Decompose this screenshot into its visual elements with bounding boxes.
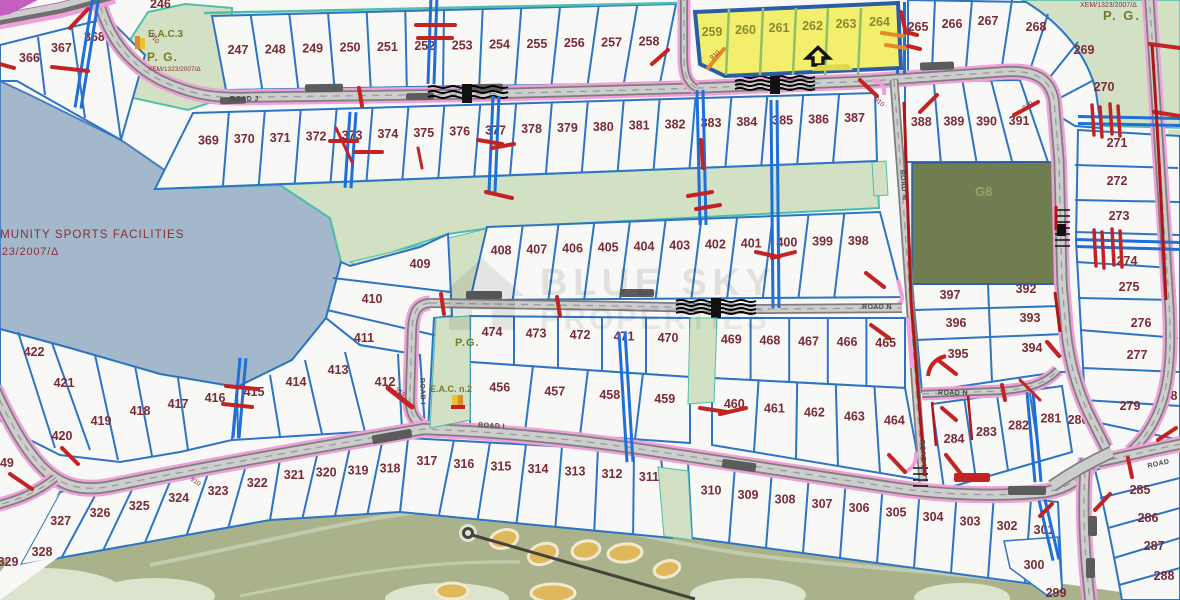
svg-text:270: 270 (1094, 80, 1115, 94)
svg-text:377: 377 (485, 124, 506, 138)
svg-text:285: 285 (1130, 483, 1151, 497)
svg-text:287: 287 (1144, 539, 1165, 553)
svg-text:276: 276 (1131, 316, 1152, 330)
svg-text:329: 329 (0, 555, 18, 569)
svg-text:413: 413 (328, 363, 349, 377)
svg-text:249: 249 (302, 42, 323, 56)
svg-text:286: 286 (1138, 511, 1159, 525)
svg-text:BLUE SKY: BLUE SKY (540, 262, 776, 304)
svg-text:283: 283 (976, 425, 997, 439)
svg-text:246: 246 (150, 0, 171, 11)
svg-text:372: 372 (306, 130, 327, 144)
svg-text:418: 418 (130, 404, 151, 418)
svg-text:466: 466 (837, 335, 858, 349)
svg-text:393: 393 (1020, 311, 1041, 325)
svg-text:421: 421 (54, 376, 75, 390)
svg-text:371: 371 (270, 131, 291, 145)
svg-text:457: 457 (544, 384, 565, 398)
svg-text:ROAD N: ROAD N (862, 304, 892, 311)
svg-text:267: 267 (978, 14, 999, 28)
svg-text:407: 407 (526, 242, 547, 256)
svg-text:E.A.C. n.2: E.A.C. n.2 (430, 384, 472, 394)
svg-text:389: 389 (943, 115, 964, 129)
svg-text:268: 268 (1026, 20, 1047, 34)
svg-text:259: 259 (702, 25, 723, 39)
svg-text:309: 309 (738, 488, 759, 502)
svg-text:273: 273 (1109, 209, 1130, 223)
svg-text:252: 252 (414, 39, 435, 53)
svg-text:248: 248 (265, 42, 286, 56)
svg-text:303: 303 (960, 514, 981, 528)
svg-text:COMMUNITY SPORTS FACILITIES: COMMUNITY SPORTS FACILITIES (0, 229, 185, 241)
svg-text:254: 254 (489, 38, 510, 52)
svg-text:316: 316 (453, 457, 474, 471)
svg-text:250: 250 (340, 41, 361, 55)
svg-text:374: 374 (377, 127, 398, 141)
svg-text:266: 266 (942, 17, 963, 31)
svg-text:387: 387 (844, 111, 865, 125)
svg-text:370: 370 (234, 132, 255, 146)
svg-text:385: 385 (772, 114, 793, 128)
svg-text:325: 325 (129, 499, 150, 513)
svg-text:375: 375 (413, 126, 434, 140)
svg-text:269: 269 (1074, 43, 1095, 57)
svg-text:397: 397 (940, 288, 961, 302)
svg-text:384: 384 (736, 115, 757, 129)
svg-text:279: 279 (1120, 399, 1141, 413)
svg-text:366: 366 (19, 51, 40, 65)
svg-text:315: 315 (490, 459, 511, 473)
svg-text:390: 390 (976, 114, 997, 128)
svg-text:281: 281 (1040, 411, 1061, 425)
svg-text:ROAD J: ROAD J (230, 96, 259, 103)
svg-text:410: 410 (362, 292, 383, 306)
svg-text:420: 420 (52, 429, 73, 443)
svg-text:305: 305 (886, 506, 907, 520)
svg-text:G8: G8 (975, 184, 992, 199)
svg-text:284: 284 (944, 432, 965, 446)
svg-text:306: 306 (849, 501, 870, 515)
svg-text:459: 459 (654, 392, 675, 406)
svg-text:260: 260 (735, 23, 756, 37)
svg-text:327: 327 (50, 514, 71, 528)
svg-text:302: 302 (997, 519, 1018, 533)
svg-text:465: 465 (875, 336, 896, 350)
svg-text:369: 369 (198, 133, 219, 147)
svg-text:463: 463 (844, 410, 865, 424)
svg-text:399: 399 (812, 235, 833, 249)
svg-text:328: 328 (32, 545, 53, 559)
svg-text:326: 326 (90, 506, 111, 520)
svg-text:1323/2007/Δ: 1323/2007/Δ (0, 246, 59, 258)
svg-text:419: 419 (91, 414, 112, 428)
svg-text:307: 307 (812, 497, 833, 511)
svg-text:ROAD N: ROAD N (938, 390, 968, 397)
svg-text:411: 411 (354, 331, 374, 345)
svg-text:398: 398 (848, 234, 869, 248)
svg-text:349: 349 (0, 456, 14, 470)
svg-text:263: 263 (836, 17, 857, 31)
svg-text:300: 300 (1024, 558, 1045, 572)
svg-text:311: 311 (639, 470, 659, 484)
svg-text:402: 402 (705, 238, 726, 252)
svg-text:422: 422 (24, 345, 45, 359)
svg-text:310: 310 (701, 484, 722, 498)
svg-text:395: 395 (948, 347, 969, 361)
svg-text:256: 256 (564, 36, 585, 50)
svg-text:308: 308 (775, 492, 796, 506)
svg-text:321: 321 (284, 468, 305, 482)
svg-text:376: 376 (449, 125, 470, 139)
svg-text:394: 394 (1022, 341, 1043, 355)
svg-text:414: 414 (286, 375, 307, 389)
svg-text:391: 391 (1009, 114, 1030, 128)
svg-text:314: 314 (528, 462, 549, 476)
svg-text:456: 456 (489, 381, 510, 395)
svg-text:P. G.: P. G. (147, 50, 178, 64)
svg-text:299: 299 (1046, 586, 1067, 600)
svg-text:378: 378 (521, 122, 542, 136)
svg-text:P.G.: P.G. (455, 337, 480, 349)
svg-text:462: 462 (804, 405, 825, 419)
svg-text:322: 322 (247, 476, 268, 490)
svg-text:258: 258 (639, 35, 660, 49)
svg-text:ΧΕΜ/1323/2007/Δ: ΧΕΜ/1323/2007/Δ (1080, 2, 1137, 9)
svg-text:367: 367 (51, 41, 72, 55)
svg-text:380: 380 (593, 120, 614, 134)
svg-text:257: 257 (601, 35, 622, 49)
svg-text:PROPERTIES: PROPERTIES (540, 301, 770, 336)
svg-text:318: 318 (380, 461, 401, 475)
svg-text:253: 253 (452, 38, 473, 52)
svg-text:464: 464 (884, 414, 905, 428)
svg-text:312: 312 (602, 467, 623, 481)
svg-text:324: 324 (168, 491, 189, 505)
svg-text:386: 386 (808, 112, 829, 126)
svg-text:272: 272 (1107, 174, 1128, 188)
svg-text:396: 396 (946, 316, 967, 330)
svg-text:282: 282 (1008, 418, 1029, 432)
svg-text:458: 458 (599, 388, 620, 402)
svg-text:264: 264 (869, 15, 890, 29)
svg-text:261: 261 (769, 21, 790, 35)
svg-text:288: 288 (1154, 569, 1175, 583)
svg-text:323: 323 (208, 484, 229, 498)
svg-text:412: 412 (375, 375, 396, 389)
svg-text:379: 379 (557, 121, 578, 135)
svg-text:382: 382 (665, 117, 686, 131)
svg-text:320: 320 (316, 466, 337, 480)
svg-text:255: 255 (526, 37, 547, 51)
svg-text:404: 404 (634, 240, 655, 254)
svg-text:271: 271 (1107, 136, 1128, 150)
svg-text:277: 277 (1127, 348, 1148, 362)
svg-text:403: 403 (669, 239, 690, 253)
svg-text:408: 408 (491, 243, 512, 257)
svg-text:275: 275 (1119, 280, 1140, 294)
svg-text:247: 247 (228, 43, 249, 57)
svg-text:409: 409 (410, 257, 431, 271)
svg-text:262: 262 (802, 19, 823, 33)
svg-text:381: 381 (629, 119, 650, 133)
svg-text:388: 388 (911, 115, 932, 129)
svg-text:319: 319 (348, 464, 369, 478)
svg-text:406: 406 (562, 241, 583, 255)
svg-text:304: 304 (923, 510, 944, 524)
svg-text:251: 251 (377, 40, 398, 54)
svg-text:417: 417 (168, 397, 189, 411)
svg-text:405: 405 (598, 240, 619, 254)
svg-text:317: 317 (416, 454, 437, 468)
svg-text:ΧΕΜ/1323/2007/Δ: ΧΕΜ/1323/2007/Δ (148, 66, 201, 73)
svg-text:ROAD I: ROAD I (478, 422, 505, 430)
svg-text:467: 467 (798, 334, 819, 348)
svg-text:ROAD I: ROAD I (418, 378, 426, 405)
svg-text:P. G.: P. G. (1103, 8, 1141, 23)
svg-text:461: 461 (764, 401, 785, 415)
svg-text:401: 401 (741, 237, 762, 251)
svg-text:313: 313 (565, 465, 586, 479)
